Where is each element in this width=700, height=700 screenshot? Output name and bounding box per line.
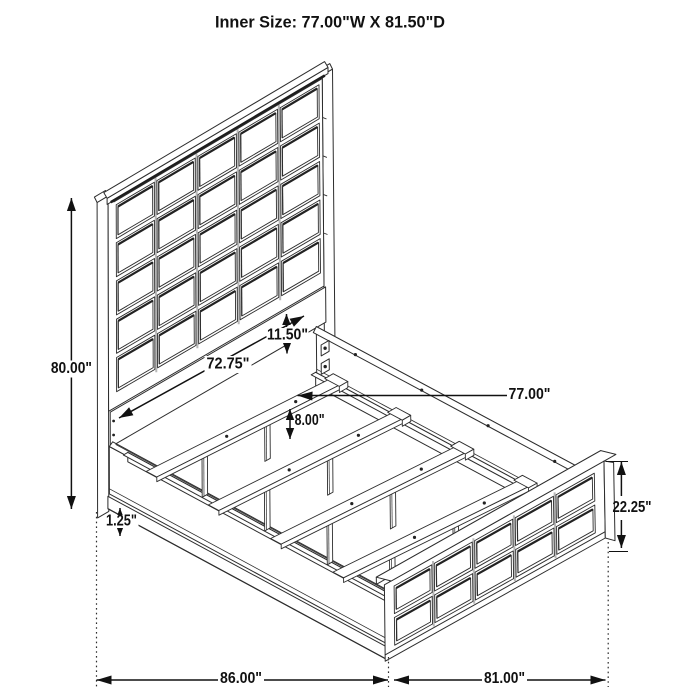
svg-text:11.50": 11.50" (267, 327, 308, 344)
svg-text:1.25": 1.25" (106, 513, 137, 530)
svg-text:22.25": 22.25" (613, 499, 652, 516)
svg-text:80.00": 80.00" (51, 360, 92, 377)
svg-text:72.75": 72.75" (207, 356, 250, 373)
svg-text:Inner Size: 77.00"W X 81.50"D: Inner Size: 77.00"W X 81.50"D (215, 13, 445, 31)
svg-text:8.00": 8.00" (295, 412, 325, 429)
svg-text:86.00": 86.00" (220, 670, 262, 687)
svg-text:77.00": 77.00" (509, 386, 551, 403)
svg-text:81.00": 81.00" (484, 670, 525, 687)
